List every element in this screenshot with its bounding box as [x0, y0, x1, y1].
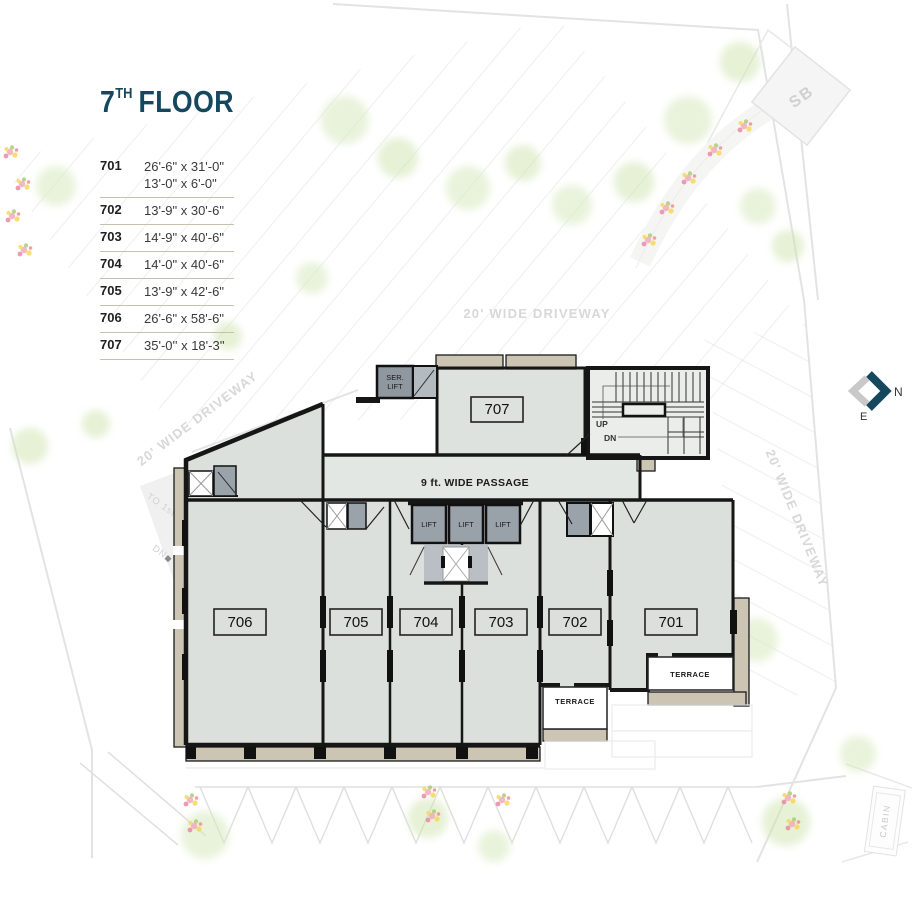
- legend-dim-line: 13'-9" x 30'-6": [144, 203, 224, 218]
- unit-706-room: [186, 404, 323, 745]
- legend-unit-number: 706: [100, 310, 144, 325]
- legend-unit-dims: 14'-0" x 40'-6": [144, 256, 224, 273]
- passage-label: 9 ft. WIDE PASSAGE: [421, 477, 529, 489]
- ser-lift-label: SER.LIFT: [386, 373, 404, 391]
- unit-702-label: 702: [562, 614, 587, 631]
- legend-unit-dims: 35'-0'' x 18'-3'': [144, 337, 225, 354]
- site-sb-plot: SB: [752, 47, 850, 145]
- unit-703-label: 703: [488, 614, 513, 631]
- legend-unit-dims: 26'-6" x 58'-6": [144, 310, 224, 327]
- legend-unit-dims: 26'-6" x 31'-0"13'-0" x 6'-0": [144, 158, 224, 192]
- lift-3-label: LIFT: [495, 520, 511, 529]
- unit-705-label: 705: [343, 614, 368, 631]
- stairs-dn-label: DN: [604, 433, 616, 443]
- legend-unit-dims: 14'-9" x 40'-6": [144, 229, 224, 246]
- legend-row-704: 704 14'-0" x 40'-6": [100, 252, 234, 279]
- legend-row-706: 706 26'-6" x 58'-6": [100, 306, 234, 333]
- legend-unit-dims: 13'-9" x 42'-6": [144, 283, 224, 300]
- unit-704-label: 704: [413, 614, 438, 631]
- unit-706-label: 706: [227, 614, 252, 631]
- compass-n-label: N: [894, 385, 903, 399]
- legend-dim-line: 13'-0" x 6'-0": [144, 175, 224, 192]
- legend-unit-number: 705: [100, 283, 144, 298]
- legend-dim-line: 26'-6" x 58'-6": [144, 311, 224, 326]
- compass: N E: [853, 374, 903, 423]
- title-word: FLOOR: [138, 84, 233, 119]
- title-number: 7: [100, 84, 115, 119]
- legend-row-702: 702 13'-9" x 30'-6": [100, 198, 234, 225]
- legend-unit-dims: 13'-9" x 30'-6": [144, 202, 224, 219]
- driveway-label-top: 20' WIDE DRIVEWAY: [463, 306, 610, 321]
- legend-unit-number: 704: [100, 256, 144, 271]
- terrace-701: TERRACE: [648, 657, 733, 690]
- legend-row-705: 705 13'-9" x 42'-6": [100, 279, 234, 306]
- legend-unit-number: 703: [100, 229, 144, 244]
- legend-dim-line: 13'-9" x 42'-6": [144, 284, 224, 299]
- page-title: 7THFLOOR: [100, 84, 220, 120]
- lift-2-label: LIFT: [458, 520, 474, 529]
- compass-e-label: E: [860, 411, 867, 423]
- legend-unit-number: 702: [100, 202, 144, 217]
- terrace-701-label: TERRACE: [670, 670, 710, 679]
- legend-unit-number: 707: [100, 337, 144, 352]
- floor-plan-page: SB CABIN 20' WIDE DRIVEWAY 20' WIDE DRIV…: [0, 0, 912, 914]
- legend-row-703: 703 14'-9" x 40'-6": [100, 225, 234, 252]
- compass-west-chevron-icon: [853, 378, 867, 404]
- unit-701-label: 701: [658, 614, 683, 631]
- stairs-up-label: UP: [596, 419, 608, 429]
- legend-dim-line: 14'-0" x 40'-6": [144, 257, 224, 272]
- terrace-702-label: TERRACE: [555, 697, 595, 706]
- legend-unit-number: 701: [100, 158, 144, 173]
- legend-dim-line: 35'-0'' x 18'-3'': [144, 338, 225, 353]
- legend-dim-line: 14'-9" x 40'-6": [144, 230, 224, 245]
- terrace-702: TERRACE: [543, 687, 607, 729]
- service-lift: SER.LIFT: [377, 366, 437, 398]
- legend-row-701: 701 26'-6" x 31'-0"13'-0" x 6'-0": [100, 154, 234, 198]
- lift-1-label: LIFT: [421, 520, 437, 529]
- compass-north-chevron-icon: [869, 374, 886, 408]
- unit-707-label: 707: [484, 401, 509, 418]
- legend: 7THFLOOR 701 26'-6" x 31'-0"13'-0" x 6'-…: [100, 84, 240, 360]
- title-ordinal: TH: [115, 85, 132, 102]
- legend-dim-line: 26'-6" x 31'-0": [144, 159, 224, 174]
- legend-row-707: 707 35'-0'' x 18'-3'': [100, 333, 234, 360]
